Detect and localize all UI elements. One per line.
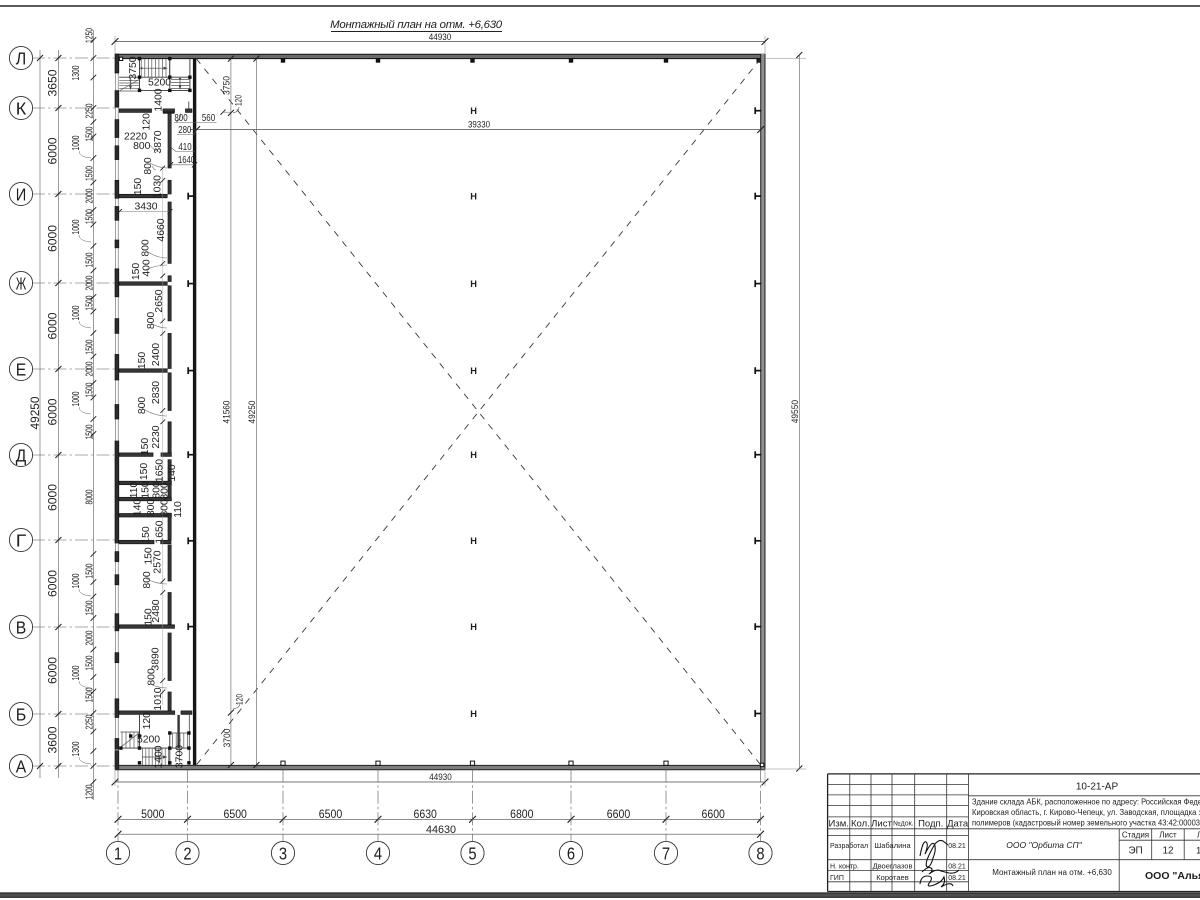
svg-text:1010: 1010 bbox=[153, 687, 164, 710]
svg-text:1500: 1500 bbox=[85, 563, 96, 578]
svg-text:7: 7 bbox=[662, 843, 670, 863]
svg-text:150: 150 bbox=[143, 608, 154, 626]
svg-text:44930: 44930 bbox=[429, 772, 452, 782]
svg-text:2650: 2650 bbox=[154, 289, 165, 312]
svg-text:41560: 41560 bbox=[222, 401, 232, 424]
svg-text:2000: 2000 bbox=[85, 361, 96, 376]
svg-text:2400: 2400 bbox=[151, 343, 162, 366]
svg-text:К: К bbox=[16, 98, 27, 118]
svg-text:800: 800 bbox=[141, 239, 152, 257]
svg-text:Кол.: Кол. bbox=[851, 818, 870, 829]
svg-text:4660: 4660 bbox=[156, 218, 167, 241]
svg-text:И: И bbox=[16, 184, 27, 204]
svg-text:5200: 5200 bbox=[137, 735, 160, 746]
svg-text:1400: 1400 bbox=[153, 745, 164, 768]
svg-text:Разработал: Разработал bbox=[830, 842, 868, 850]
svg-text:Монтажный план на отм. +6,630: Монтажный план на отм. +6,630 bbox=[992, 868, 1112, 877]
svg-text:Подп.: Подп. bbox=[918, 818, 943, 829]
svg-text:Л: Л bbox=[16, 48, 27, 68]
svg-text:4: 4 bbox=[374, 843, 382, 863]
svg-text:120: 120 bbox=[142, 712, 153, 730]
svg-text:ООО "Орбита СП": ООО "Орбита СП" bbox=[1006, 840, 1082, 850]
svg-text:Н: Н bbox=[470, 191, 477, 201]
svg-text:Здание склада АБК, расположенн: Здание склада АБК, расположенное по адре… bbox=[972, 798, 1200, 807]
svg-text:800: 800 bbox=[147, 668, 158, 686]
svg-text:12: 12 bbox=[1162, 846, 1174, 857]
svg-text:1: 1 bbox=[1196, 846, 1200, 857]
svg-text:№док.: №док. bbox=[893, 821, 914, 828]
svg-text:1500: 1500 bbox=[85, 655, 96, 670]
svg-text:120: 120 bbox=[234, 694, 244, 705]
svg-text:Н: Н bbox=[470, 709, 477, 719]
svg-text:1500: 1500 bbox=[85, 126, 96, 141]
svg-text:1000: 1000 bbox=[71, 135, 82, 150]
svg-text:2000: 2000 bbox=[85, 630, 96, 645]
svg-text:2000: 2000 bbox=[85, 275, 96, 290]
svg-text:1640: 1640 bbox=[178, 155, 195, 166]
svg-text:Б: Б bbox=[16, 704, 27, 724]
svg-text:полимеров (кадастровый номер з: полимеров (кадастровый номер земельного … bbox=[972, 818, 1200, 827]
svg-text:1300: 1300 bbox=[71, 65, 82, 80]
svg-text:1030: 1030 bbox=[152, 175, 163, 198]
svg-text:Изм.: Изм. bbox=[829, 818, 849, 829]
svg-text:1000: 1000 bbox=[71, 391, 82, 406]
svg-text:120: 120 bbox=[142, 113, 153, 131]
svg-text:1000: 1000 bbox=[71, 305, 82, 320]
svg-text:1500: 1500 bbox=[85, 252, 96, 267]
svg-text:2000: 2000 bbox=[85, 188, 96, 203]
svg-text:1500: 1500 bbox=[85, 424, 96, 439]
svg-text:1500: 1500 bbox=[85, 600, 96, 615]
svg-text:140: 140 bbox=[167, 464, 178, 482]
svg-text:8: 8 bbox=[756, 843, 764, 863]
svg-text:150: 150 bbox=[141, 526, 152, 544]
svg-text:08.21: 08.21 bbox=[948, 863, 966, 870]
svg-text:280: 280 bbox=[178, 125, 191, 136]
svg-text:Коротаев: Коротаев bbox=[876, 873, 908, 882]
svg-text:2: 2 bbox=[183, 843, 191, 863]
svg-text:49250: 49250 bbox=[28, 396, 42, 429]
svg-text:150: 150 bbox=[131, 263, 142, 281]
svg-text:1500: 1500 bbox=[85, 339, 96, 354]
svg-text:1000: 1000 bbox=[71, 665, 82, 680]
svg-text:Лист: Лист bbox=[1159, 831, 1177, 840]
svg-text:1300: 1300 bbox=[71, 741, 82, 756]
svg-text:44930: 44930 bbox=[429, 32, 452, 42]
svg-text:6: 6 bbox=[567, 843, 575, 863]
svg-text:Н: Н bbox=[470, 366, 477, 376]
svg-text:6000: 6000 bbox=[46, 570, 60, 597]
svg-text:39330: 39330 bbox=[468, 120, 490, 130]
svg-text:3430: 3430 bbox=[134, 202, 157, 213]
svg-text:6000: 6000 bbox=[46, 225, 60, 252]
svg-text:120: 120 bbox=[233, 95, 243, 106]
svg-text:3750: 3750 bbox=[128, 56, 139, 79]
svg-text:800: 800 bbox=[174, 113, 187, 124]
svg-text:49550: 49550 bbox=[790, 400, 800, 423]
svg-text:6500: 6500 bbox=[224, 809, 247, 821]
svg-text:49250: 49250 bbox=[247, 401, 257, 424]
svg-text:3650: 3650 bbox=[46, 69, 60, 96]
svg-text:800: 800 bbox=[160, 482, 171, 500]
svg-text:А: А bbox=[16, 756, 27, 776]
svg-text:1500: 1500 bbox=[85, 166, 96, 181]
svg-text:Н: Н bbox=[470, 279, 477, 289]
svg-text:1400: 1400 bbox=[154, 88, 165, 111]
svg-text:Стадия: Стадия bbox=[1122, 831, 1149, 840]
svg-text:6800: 6800 bbox=[510, 809, 533, 821]
svg-text:6500: 6500 bbox=[319, 809, 342, 821]
svg-text:1000: 1000 bbox=[71, 573, 82, 588]
svg-text:6000: 6000 bbox=[46, 398, 60, 425]
svg-text:Н: Н bbox=[470, 622, 477, 632]
svg-text:1650: 1650 bbox=[154, 520, 165, 543]
svg-text:150: 150 bbox=[133, 178, 144, 196]
svg-text:5: 5 bbox=[468, 843, 476, 863]
svg-text:800: 800 bbox=[137, 397, 148, 415]
svg-text:110: 110 bbox=[173, 501, 184, 518]
svg-text:Лист: Лист bbox=[871, 818, 892, 829]
svg-text:1: 1 bbox=[114, 843, 122, 863]
svg-text:3890: 3890 bbox=[151, 647, 162, 670]
svg-text:1500: 1500 bbox=[85, 382, 96, 397]
svg-text:6000: 6000 bbox=[46, 484, 60, 511]
svg-text:Дата: Дата bbox=[947, 818, 969, 829]
svg-text:1250: 1250 bbox=[85, 28, 96, 43]
svg-text:800: 800 bbox=[133, 141, 151, 152]
svg-text:ГИП: ГИП bbox=[830, 875, 844, 882]
svg-text:6000: 6000 bbox=[46, 312, 60, 339]
svg-text:Е: Е bbox=[16, 359, 27, 379]
svg-text:6000: 6000 bbox=[46, 657, 60, 684]
svg-text:5000: 5000 bbox=[141, 809, 164, 821]
svg-text:44630: 44630 bbox=[426, 824, 456, 836]
svg-text:08.21: 08.21 bbox=[948, 875, 966, 882]
svg-text:Монтажный план на отм. +6,630: Монтажный план на отм. +6,630 bbox=[330, 19, 503, 31]
svg-text:800: 800 bbox=[143, 157, 154, 175]
svg-text:Н: Н bbox=[470, 450, 477, 460]
svg-text:Н. контр.: Н. контр. bbox=[830, 863, 859, 870]
svg-text:800: 800 bbox=[146, 312, 157, 330]
svg-text:560: 560 bbox=[202, 113, 215, 124]
svg-text:5200: 5200 bbox=[148, 77, 171, 88]
svg-text:8000: 8000 bbox=[85, 489, 96, 504]
svg-text:Шабалина: Шабалина bbox=[874, 841, 911, 850]
svg-text:110: 110 bbox=[129, 482, 140, 499]
svg-text:800: 800 bbox=[160, 499, 171, 517]
svg-text:2570: 2570 bbox=[152, 550, 163, 573]
svg-text:1650: 1650 bbox=[154, 459, 165, 482]
svg-text:08.21: 08.21 bbox=[948, 843, 966, 850]
svg-text:ЭП: ЭП bbox=[1128, 846, 1142, 857]
svg-text:1000: 1000 bbox=[71, 219, 82, 234]
svg-text:2830: 2830 bbox=[151, 381, 162, 404]
svg-text:1500: 1500 bbox=[85, 209, 96, 224]
svg-text:ООО "Альянс: ООО "Альянс bbox=[1145, 870, 1200, 882]
svg-text:150: 150 bbox=[141, 481, 152, 499]
svg-text:150: 150 bbox=[137, 352, 148, 370]
svg-text:В: В bbox=[16, 617, 27, 637]
svg-text:3700: 3700 bbox=[175, 745, 186, 768]
svg-text:3600: 3600 bbox=[46, 726, 60, 753]
svg-text:6630: 6630 bbox=[414, 809, 437, 821]
svg-text:Двоеглазов: Двоеглазов bbox=[873, 861, 913, 870]
svg-text:3750: 3750 bbox=[222, 76, 232, 95]
svg-text:1200: 1200 bbox=[85, 784, 96, 799]
svg-text:800: 800 bbox=[142, 571, 153, 589]
svg-text:Д: Д bbox=[16, 445, 27, 465]
svg-text:2230: 2230 bbox=[151, 425, 162, 448]
svg-text:10-21-АР: 10-21-АР bbox=[1076, 782, 1119, 793]
svg-text:Ж: Ж bbox=[16, 273, 27, 293]
svg-text:6600: 6600 bbox=[702, 809, 725, 821]
svg-text:2250: 2250 bbox=[85, 714, 96, 729]
svg-text:Г: Г bbox=[16, 530, 27, 550]
svg-text:150: 150 bbox=[140, 438, 151, 456]
svg-text:1500: 1500 bbox=[85, 295, 96, 310]
svg-text:1500: 1500 bbox=[85, 687, 96, 702]
svg-text:410: 410 bbox=[178, 142, 191, 153]
svg-text:Н: Н bbox=[470, 536, 477, 546]
svg-text:800: 800 bbox=[146, 499, 157, 517]
svg-text:Н: Н bbox=[470, 106, 477, 116]
svg-text:2250: 2250 bbox=[85, 103, 96, 118]
svg-text:6600: 6600 bbox=[607, 809, 630, 821]
svg-text:6000: 6000 bbox=[46, 137, 60, 164]
svg-text:3700: 3700 bbox=[222, 729, 232, 748]
svg-text:140: 140 bbox=[133, 499, 144, 517]
svg-text:3: 3 bbox=[279, 843, 287, 863]
svg-text:Кировская область, г. Кирово-Ч: Кировская область, г. Кирово-Чепецк, ул.… bbox=[972, 808, 1200, 817]
svg-text:150: 150 bbox=[139, 463, 150, 481]
